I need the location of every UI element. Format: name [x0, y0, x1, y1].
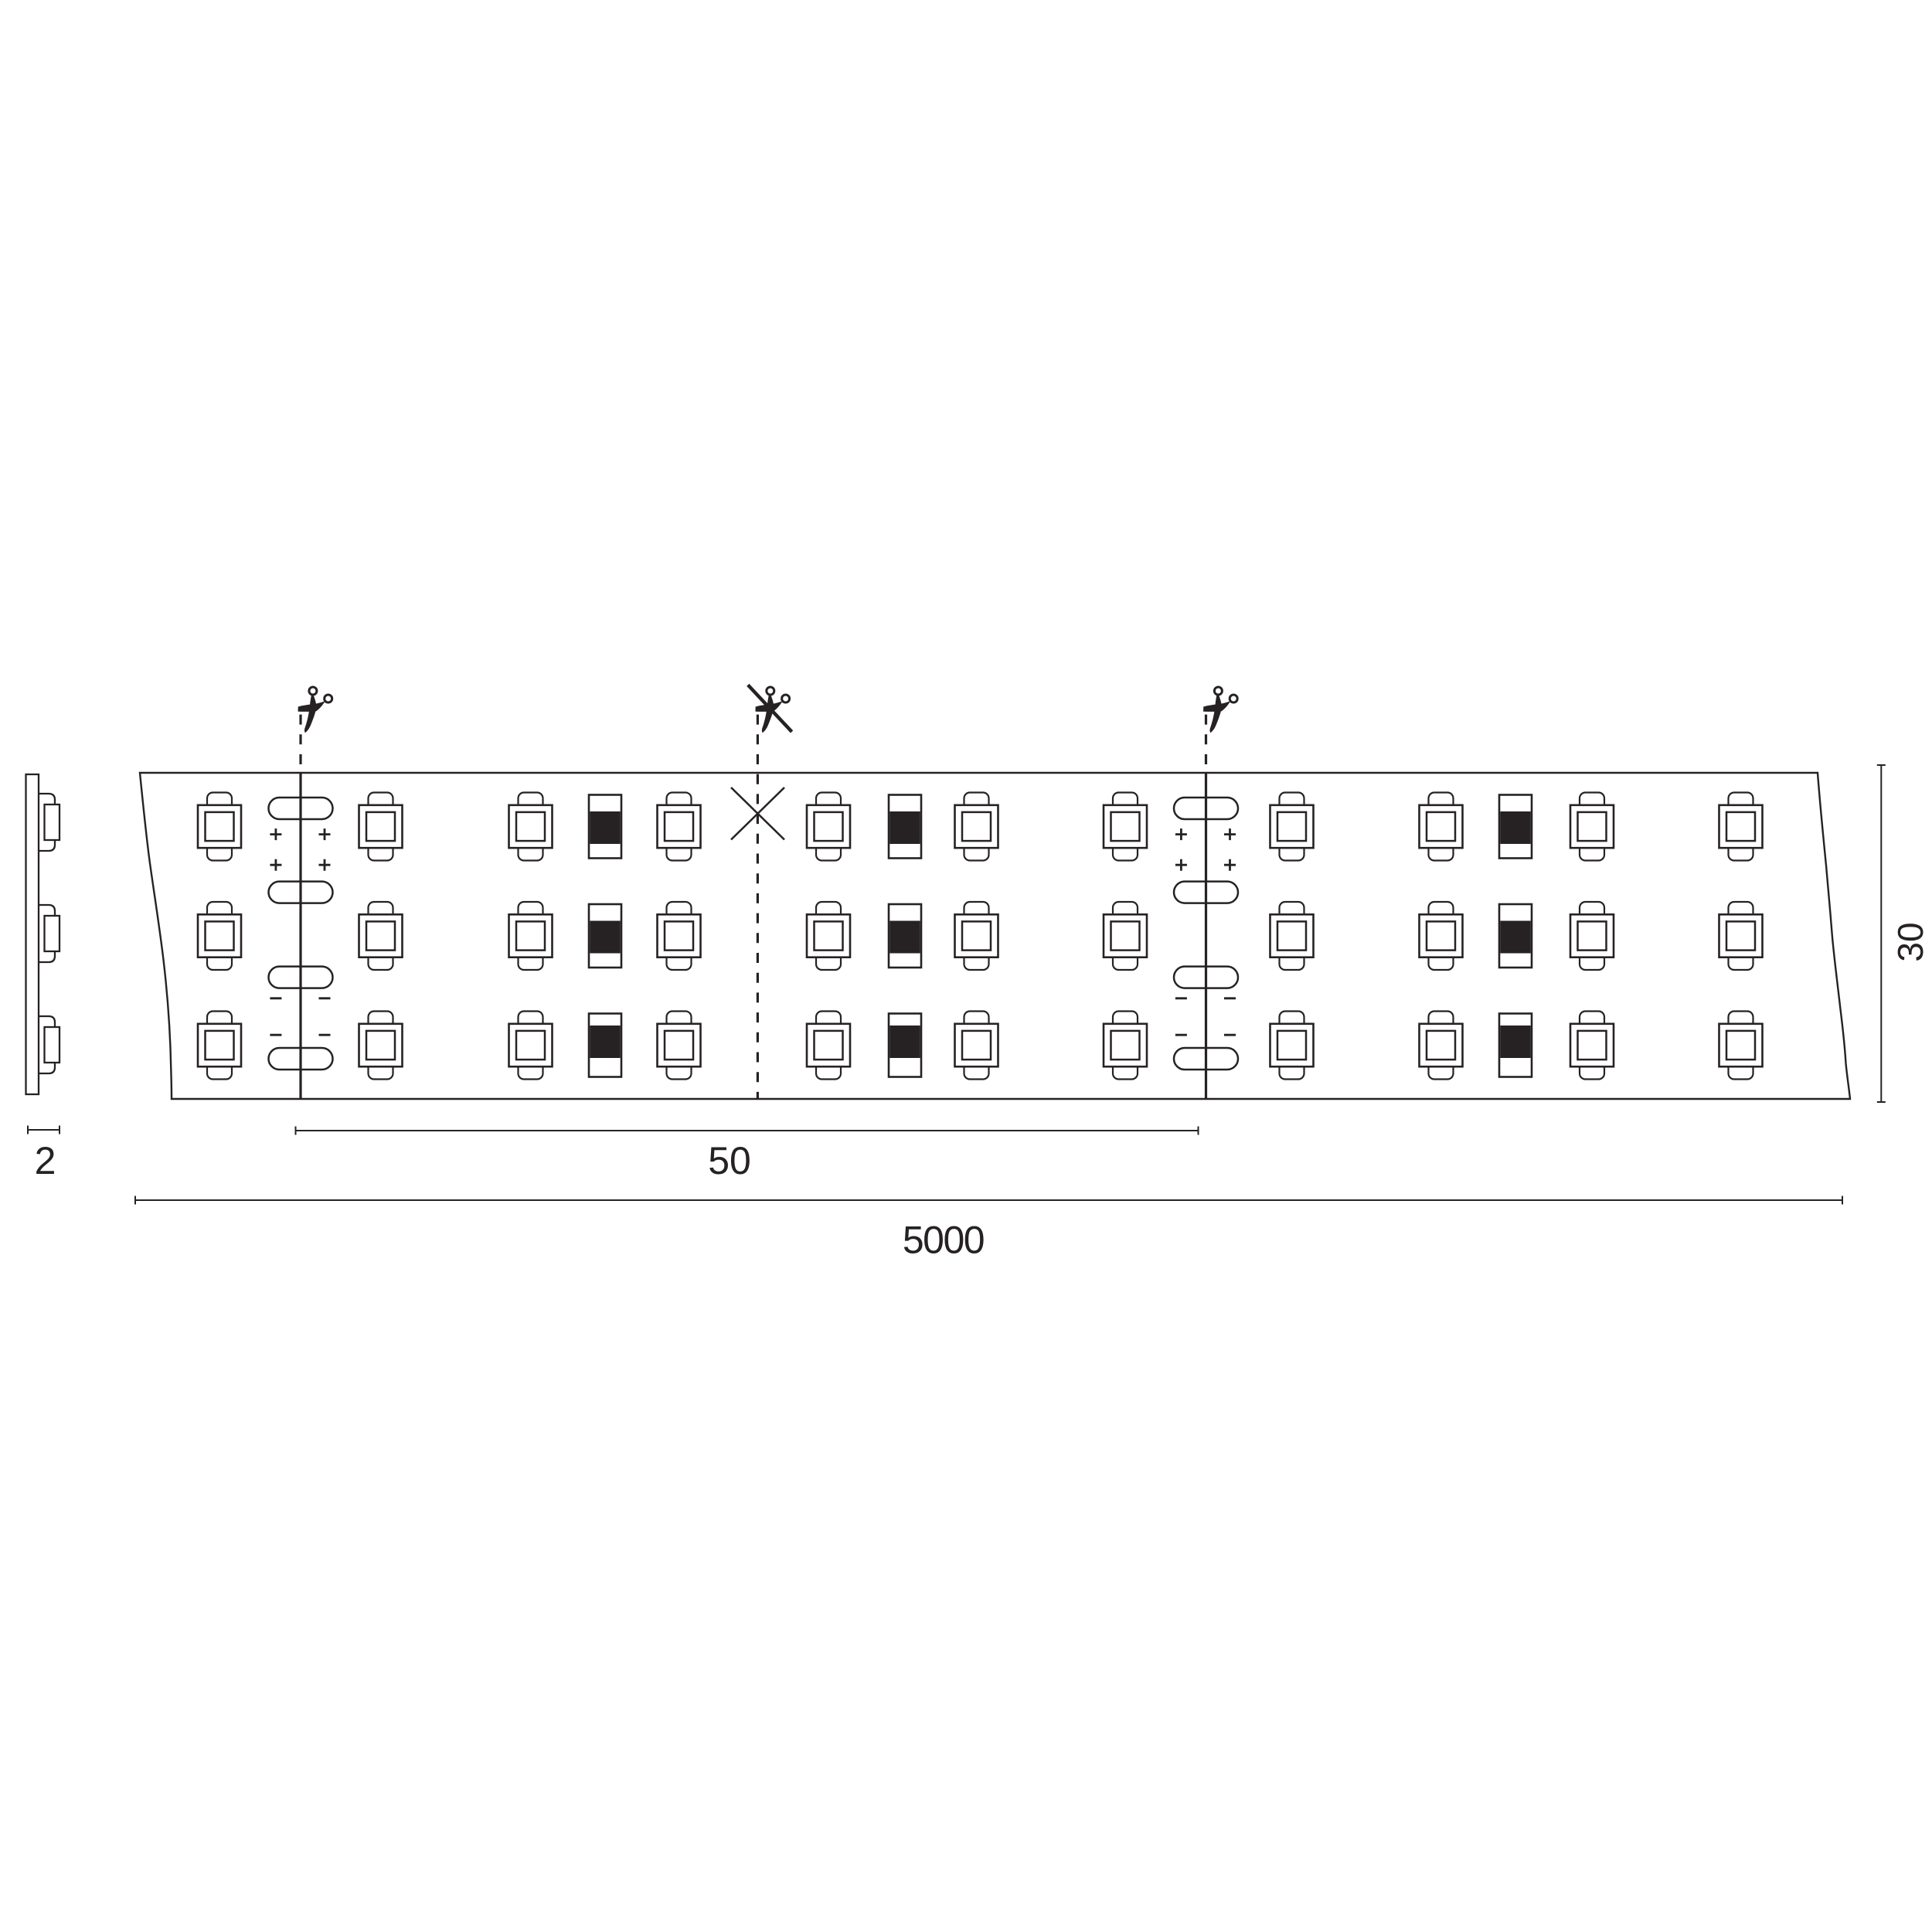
svg-text:2: 2 — [35, 1139, 56, 1182]
svg-text:30: 30 — [1890, 922, 1930, 961]
svg-text:5000: 5000 — [903, 1219, 984, 1262]
svg-text:50: 50 — [708, 1139, 751, 1182]
